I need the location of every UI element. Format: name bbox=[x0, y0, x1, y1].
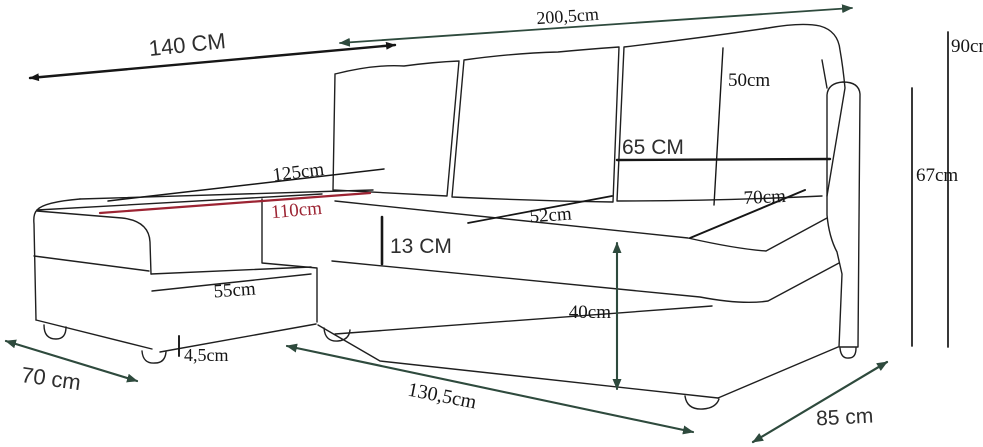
label-seat-front-band-height: 13 CM bbox=[390, 235, 452, 258]
label-chaise-length: 140 CM bbox=[148, 28, 227, 61]
label-armrest-height: 67cm bbox=[916, 165, 958, 186]
foot-chaise-front bbox=[142, 351, 166, 363]
chaise-front-top-edge bbox=[151, 267, 311, 274]
label-seat-height: 40cm bbox=[569, 302, 611, 323]
label-total-height: 90cm bbox=[951, 36, 983, 57]
label-foot-height: 4,5cm bbox=[184, 345, 229, 365]
sofa-armrest bbox=[822, 60, 860, 347]
label-seat-depth-right: 70cm bbox=[743, 186, 786, 209]
dimension-lines bbox=[6, 8, 948, 442]
chaise-top-back-edge bbox=[80, 190, 373, 199]
cushion-right bbox=[617, 24, 845, 201]
dim-line-backrest-cushion-width bbox=[617, 159, 830, 160]
sofa-back-cushions bbox=[333, 24, 845, 202]
label-chaise-top-inner-length: 110cm bbox=[270, 198, 323, 223]
label-total-width: 200,5cm bbox=[536, 4, 600, 28]
dim-line-back-cushion-height bbox=[714, 48, 723, 205]
label-back-cushion-height: 50cm bbox=[728, 70, 770, 91]
cushion-middle bbox=[452, 47, 619, 202]
base-seam bbox=[335, 306, 712, 334]
seat-band-bottom-edge bbox=[332, 261, 839, 302]
label-seat-depth-mid: 52cm bbox=[529, 204, 573, 228]
dim-line-chaise-top-inner-length bbox=[100, 193, 370, 213]
chaise-head-seam bbox=[34, 256, 149, 271]
sofa-dimension-diagram: 140 CM 200,5cm 90cm 50cm 65 CM 67cm 70cm… bbox=[0, 0, 983, 447]
diagram-canvas: 140 CM 200,5cm 90cm 50cm 65 CM 67cm 70cm… bbox=[0, 0, 983, 447]
label-backrest-cushion-width: 65 CM bbox=[622, 136, 684, 159]
base-bottom-edge bbox=[318, 325, 718, 398]
label-chaise-top-length: 125cm bbox=[271, 159, 325, 186]
dim-line-chaise-top-length bbox=[108, 169, 384, 201]
label-chaise-end-width: 70 cm bbox=[20, 362, 83, 395]
label-side-depth: 85 cm bbox=[816, 405, 874, 431]
armrest-outline bbox=[822, 60, 860, 347]
base-right-edge bbox=[718, 347, 838, 398]
label-chaise-front-length: 55cm bbox=[213, 279, 257, 303]
chaise-end-bottom-edge bbox=[36, 320, 152, 349]
cushion-left bbox=[333, 61, 459, 196]
chaise-head-nose bbox=[37, 211, 151, 274]
foot-armrest bbox=[840, 348, 856, 358]
